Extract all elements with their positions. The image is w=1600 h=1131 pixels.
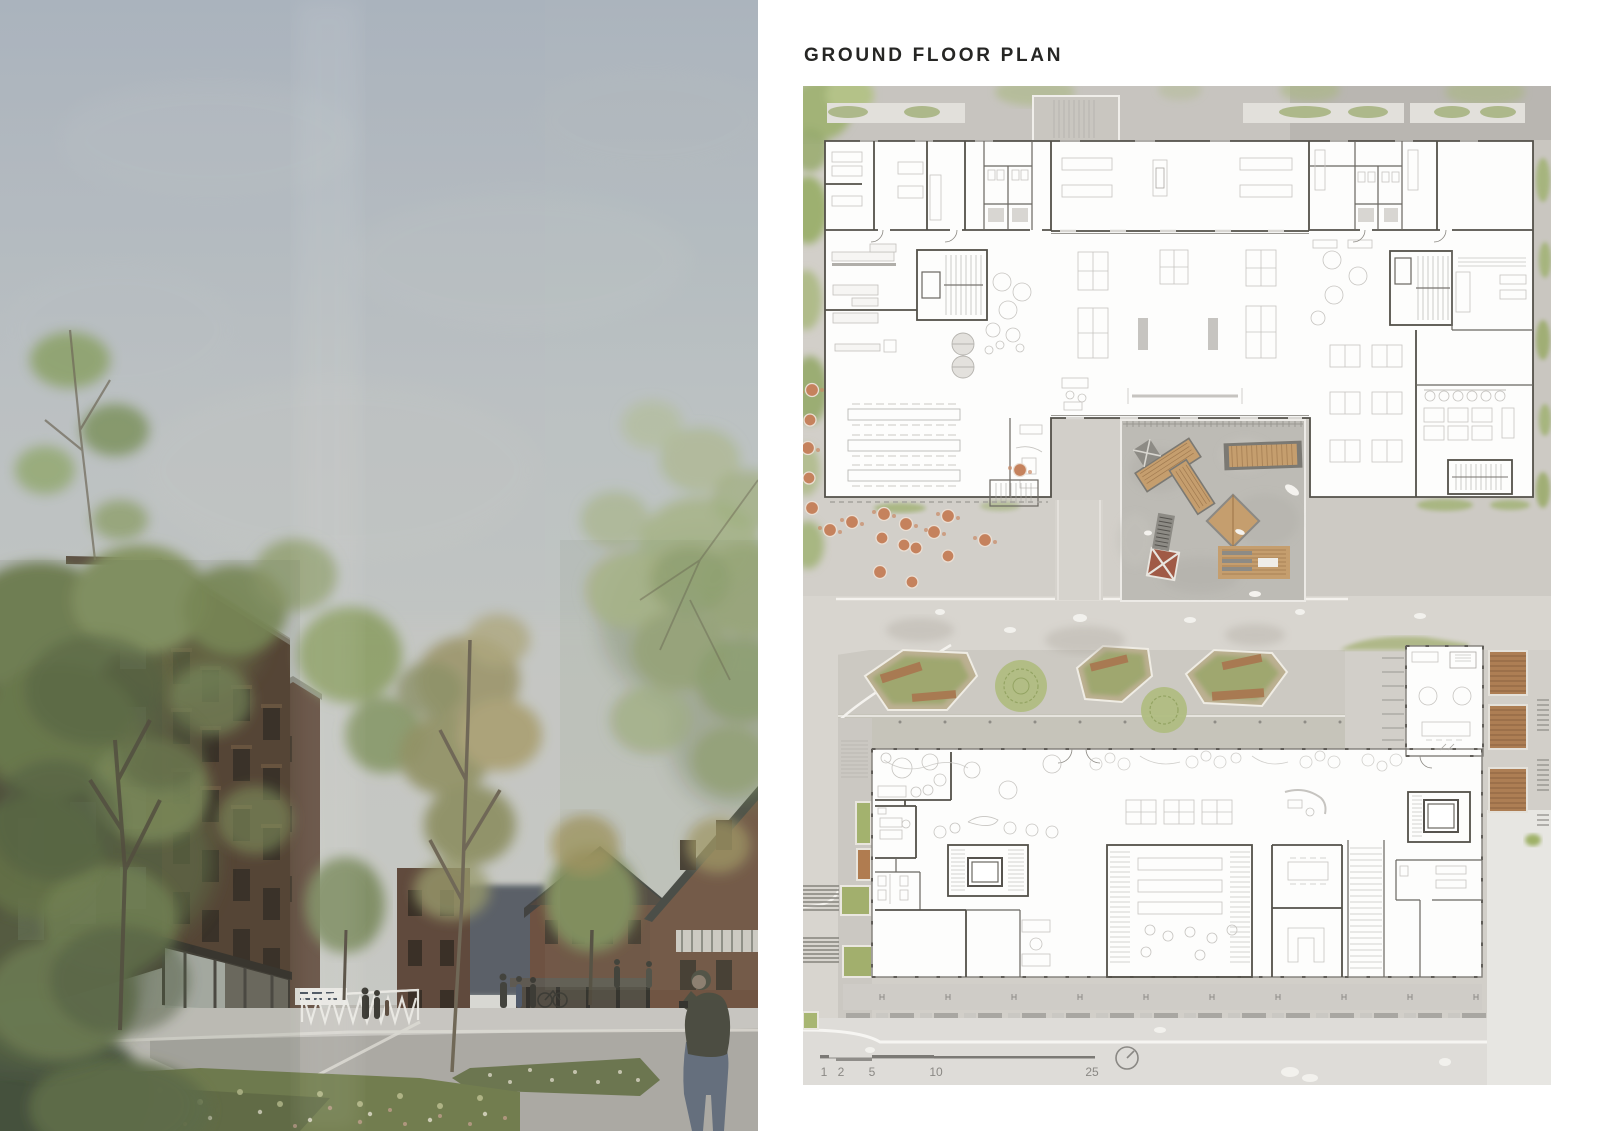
svg-text:10: 10 [929, 1065, 943, 1079]
svg-text:5: 5 [869, 1065, 876, 1079]
svg-text:25: 25 [1085, 1065, 1099, 1079]
svg-text:2: 2 [838, 1065, 845, 1079]
svg-text:1: 1 [821, 1065, 828, 1079]
